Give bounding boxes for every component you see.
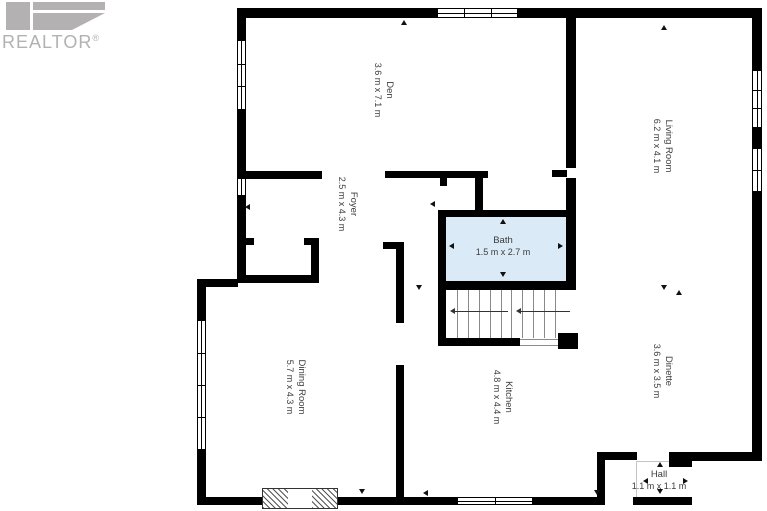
stair-direction-line <box>520 311 570 312</box>
window-pane-line <box>438 13 517 14</box>
window <box>457 497 533 505</box>
wall-segment <box>752 192 762 452</box>
stair-tread <box>511 290 512 338</box>
floor-plan: Den3.6 m x 7.1 mLiving Room6.2 m x 4.1 m… <box>0 0 767 511</box>
stair-tread <box>457 290 458 338</box>
window-pane-line <box>238 86 245 87</box>
wall-segment <box>438 210 446 290</box>
stair-tread <box>544 290 545 338</box>
wall-segment <box>552 170 567 177</box>
room-name: Dinette <box>662 344 674 399</box>
wall-segment <box>237 171 322 179</box>
room-dimensions: 2.5 m x 4.3 m <box>335 177 347 232</box>
dimension-arrow-icon <box>594 490 600 495</box>
room-label-dining-room: Dining Room5.7 m x 4.3 m <box>283 360 307 415</box>
window-pane-line <box>753 170 761 171</box>
wall-segment <box>669 452 692 467</box>
wall-segment <box>237 8 437 18</box>
window-pane-line <box>495 498 496 504</box>
wall-segment <box>566 178 576 290</box>
room-label-den: Den3.6 m x 7.1 m <box>371 63 395 118</box>
room-name: Den <box>383 63 395 118</box>
window <box>237 178 246 196</box>
stair-tread <box>522 290 523 338</box>
stair-tread <box>533 290 534 338</box>
window-pane-line <box>238 64 245 65</box>
wall-segment <box>605 452 637 460</box>
wall-segment <box>533 497 605 505</box>
dimension-arrow-icon <box>500 272 506 277</box>
dimension-arrow-icon <box>676 290 682 295</box>
wall-segment <box>237 275 319 283</box>
wall-segment <box>396 242 404 323</box>
fireplace <box>262 488 338 509</box>
stair-tread <box>468 290 469 338</box>
wall-segment <box>438 281 576 290</box>
room-name: Hall <box>632 469 687 481</box>
room-name: Dining Room <box>295 360 307 415</box>
window <box>752 148 762 192</box>
stair-tread <box>479 290 480 338</box>
window <box>237 40 246 110</box>
wall-segment <box>197 450 206 505</box>
wall-segment <box>440 178 447 186</box>
window-pane-line <box>464 9 465 17</box>
room-dimensions: 3.6 m x 7.1 m <box>371 63 383 118</box>
dimension-arrow-icon <box>500 219 506 224</box>
wall-segment <box>237 110 246 178</box>
room-label-bath: Bath1.5 m x 2.7 m <box>476 235 531 259</box>
stair-direction-arrow-icon <box>450 308 455 314</box>
wall-segment <box>475 178 483 212</box>
room-name: Kitchen <box>502 370 514 425</box>
window-pane-line <box>753 108 761 109</box>
wall-segment <box>304 238 319 245</box>
dimension-arrow-icon <box>401 20 407 25</box>
dimension-arrow-icon <box>416 285 422 290</box>
window-pane-line <box>198 385 205 386</box>
dimension-arrow-icon <box>245 204 250 210</box>
window-pane-line <box>757 71 758 127</box>
dimension-arrow-icon <box>359 489 365 494</box>
window-pane-line <box>753 90 761 91</box>
window-pane-line <box>241 41 242 109</box>
room-dimensions: 6.2 m x 4.1 m <box>650 119 662 174</box>
room-dimensions: 3.6 m x 3.5 m <box>650 344 662 399</box>
dimension-arrow-icon <box>661 25 667 30</box>
window <box>752 70 762 128</box>
window <box>197 320 206 450</box>
wall-segment <box>597 452 605 505</box>
wall-segment <box>197 497 262 505</box>
window <box>437 8 518 18</box>
room-boundary-line <box>637 461 669 462</box>
room-dimensions: 4.8 m x 4.4 m <box>490 370 502 425</box>
stair-tread <box>555 290 556 338</box>
fireplace-hatch <box>263 489 288 508</box>
wall-segment <box>438 338 520 346</box>
wall-segment <box>237 8 246 40</box>
room-dimensions: 1.1 m x 1.1 m <box>632 481 687 493</box>
dimension-arrow-icon <box>430 201 435 207</box>
wall-segment <box>518 8 762 18</box>
wall-segment <box>197 280 206 320</box>
stair-direction-line <box>454 311 508 312</box>
wall-segment <box>690 452 762 461</box>
window-pane-line <box>198 417 205 418</box>
room-label-foyer: Foyer2.5 m x 4.3 m <box>335 177 359 232</box>
wall-segment <box>752 128 762 148</box>
wall-segment <box>558 333 578 349</box>
wall-segment <box>752 8 762 70</box>
room-name: Foyer <box>347 177 359 232</box>
wall-segment <box>244 238 254 245</box>
room-label-kitchen: Kitchen4.8 m x 4.4 m <box>490 370 514 425</box>
floorplan-page: REALTOR® Den3.6 m x 7.1 mLiving Room6.2 … <box>0 0 767 511</box>
room-label-dinette: Dinette3.6 m x 3.5 m <box>650 344 674 399</box>
stair-tread <box>490 290 491 338</box>
wall-segment <box>385 171 488 178</box>
stair-direction-arrow-icon <box>516 308 521 314</box>
fireplace-hatch <box>312 489 337 508</box>
dimension-arrow-icon <box>558 243 563 249</box>
wall-segment <box>438 210 576 217</box>
window-pane-line <box>491 9 492 17</box>
room-label-hall: Hall1.1 m x 1.1 m <box>632 469 687 493</box>
wall-segment <box>566 8 576 168</box>
stair-tread <box>501 290 502 338</box>
room-dimensions: 1.5 m x 2.7 m <box>476 247 531 259</box>
wall-segment <box>396 365 404 505</box>
wall-segment <box>633 497 692 505</box>
room-dimensions: 5.7 m x 4.3 m <box>283 360 295 415</box>
room-label-living-room: Living Room6.2 m x 4.1 m <box>650 119 674 174</box>
dimension-arrow-icon <box>661 285 667 290</box>
room-name: Living Room <box>662 119 674 174</box>
dimension-arrow-icon <box>449 243 454 249</box>
dimension-arrow-icon <box>423 490 428 496</box>
room-name: Bath <box>476 235 531 247</box>
wall-segment <box>311 245 319 283</box>
window-pane-line <box>241 179 242 195</box>
dimension-arrow-icon <box>657 462 663 467</box>
window-pane-line <box>198 353 205 354</box>
